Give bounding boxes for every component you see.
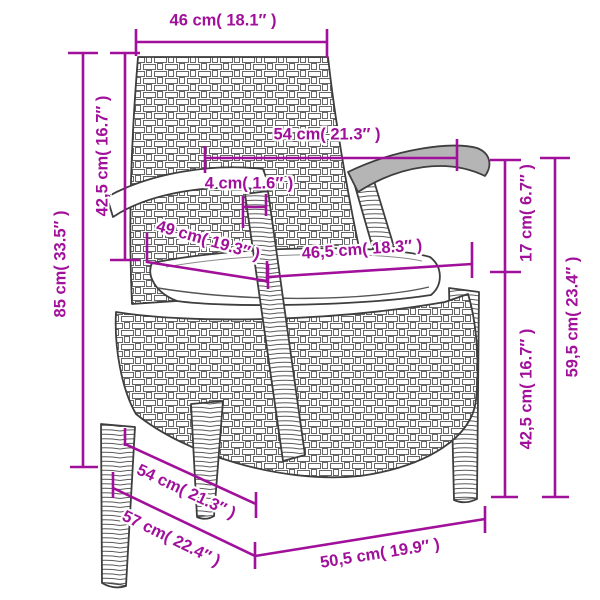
dim-label-armrest-height: 59,5 cm( 23.4″ ) [564, 257, 583, 378]
chair-dimension-diagram: 46 cm( 18.1″ ) 85 cm( 33.5″ ) 42,5 cm( 1… [0, 0, 600, 600]
dim-line-arm-above-seat [490, 160, 521, 497]
dim-label-armrest-post: 4 cm( 1.6″ ) [205, 175, 294, 194]
dim-label-top-width: 46 cm( 18.1″ ) [170, 12, 277, 31]
dim-label-armrest-span: 54 cm( 21.3″ ) [274, 126, 381, 145]
dim-label-back-height: 42,5 cm( 16.7″ ) [94, 96, 113, 217]
dim-label-total-height: 85 cm( 33.5″ ) [52, 211, 71, 318]
dim-label-seat-height: 42,5 cm( 16.7″ ) [518, 329, 537, 450]
dim-label-arm-above-seat: 17 cm( 6.7″ ) [518, 164, 537, 262]
chair-illustration-canvas [0, 0, 600, 600]
right-armrest [348, 146, 489, 192]
front-left-leg [101, 424, 135, 586]
dim-line-top-width [136, 29, 327, 58]
